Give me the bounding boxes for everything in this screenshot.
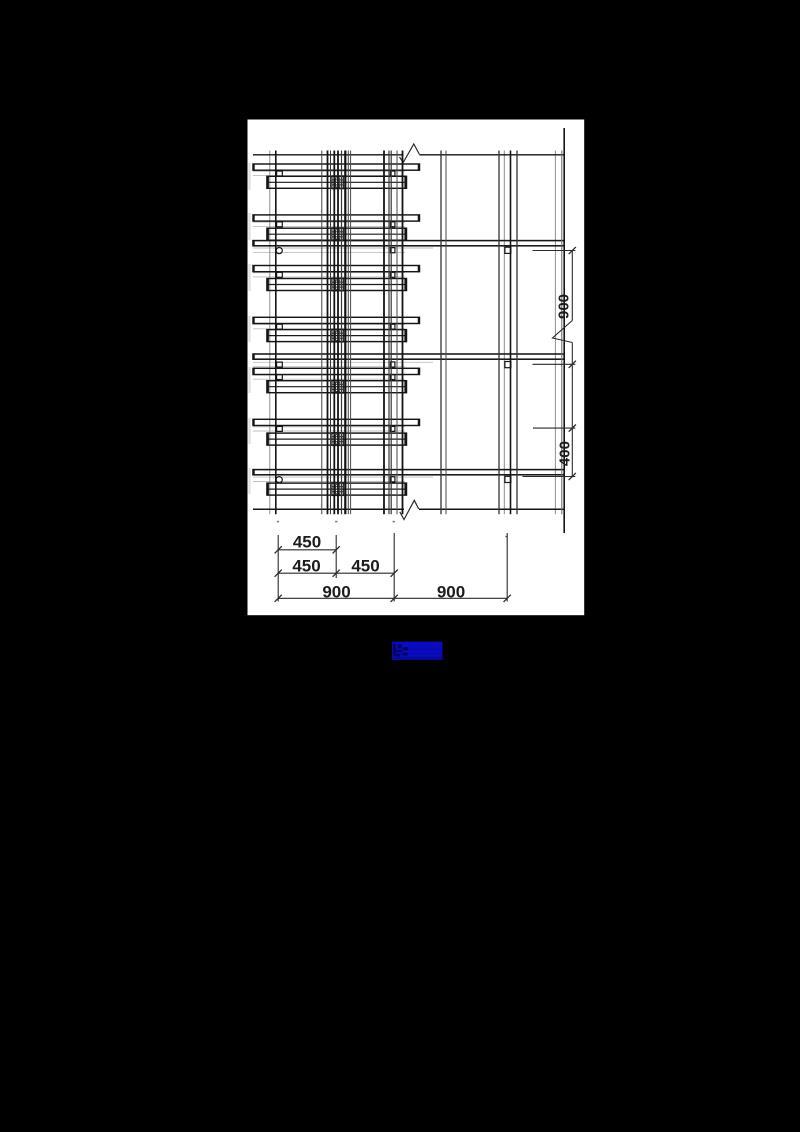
svg-text:450: 450	[351, 556, 379, 575]
svg-text:900: 900	[555, 294, 572, 319]
svg-text:900: 900	[437, 582, 465, 601]
svg-text:450: 450	[293, 533, 321, 552]
svg-text:900: 900	[322, 582, 350, 601]
svg-text:450: 450	[292, 556, 320, 575]
svg-text:400: 400	[556, 441, 573, 466]
